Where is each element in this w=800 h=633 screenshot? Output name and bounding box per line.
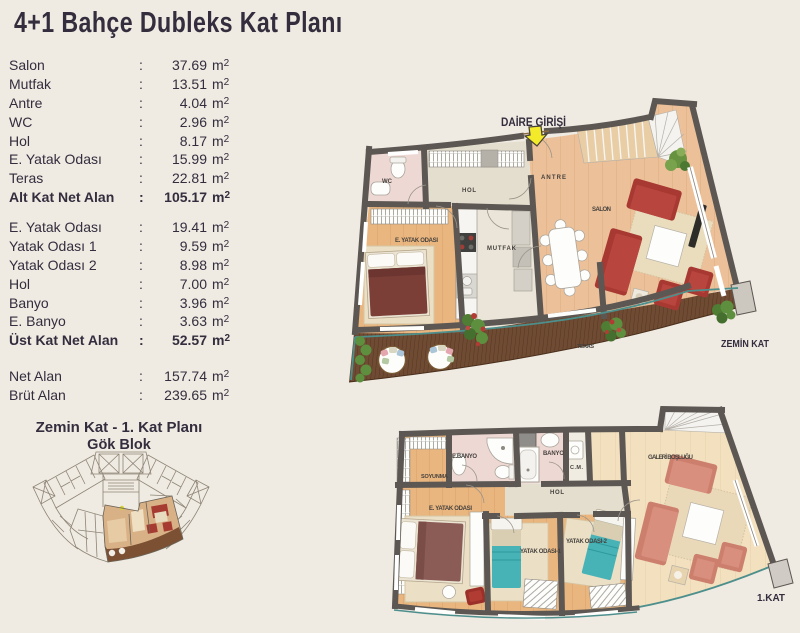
svg-text:HOL: HOL bbox=[462, 188, 476, 194]
svg-text:GALERİ BOŞLUĞU: GALERİ BOŞLUĞU bbox=[648, 453, 693, 461]
svg-text:SOYUNMA: SOYUNMA bbox=[421, 474, 448, 480]
svg-text:SALON: SALON bbox=[592, 207, 611, 213]
svg-text:C.M.: C.M. bbox=[570, 465, 583, 471]
svg-text:ZEMİN KAT: ZEMİN KAT bbox=[721, 337, 769, 350]
svg-text:E.BANYO: E.BANYO bbox=[452, 454, 477, 460]
svg-text:YATAK ODASI-2: YATAK ODASI-2 bbox=[566, 539, 608, 545]
svg-text:WC: WC bbox=[382, 179, 393, 185]
svg-text:TERAS: TERAS bbox=[577, 344, 594, 350]
svg-text:E. YATAK ODASI: E. YATAK ODASI bbox=[395, 238, 438, 244]
svg-text:HOL: HOL bbox=[550, 490, 564, 496]
svg-text:MUTFAK: MUTFAK bbox=[487, 246, 517, 252]
svg-text:E. YATAK ODASI: E. YATAK ODASI bbox=[429, 506, 472, 512]
svg-text:YATAK ODASI-1: YATAK ODASI-1 bbox=[520, 549, 562, 555]
svg-text:1.KAT: 1.KAT bbox=[757, 593, 785, 604]
svg-text:ANTRE: ANTRE bbox=[541, 175, 566, 181]
svg-text:BANYO: BANYO bbox=[543, 451, 564, 457]
